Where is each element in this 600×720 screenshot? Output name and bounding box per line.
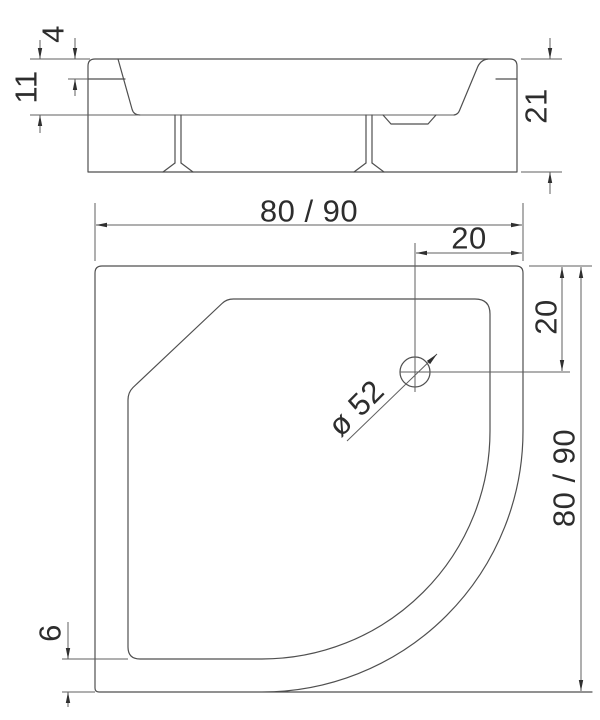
dimension-total-height: 21	[519, 38, 563, 194]
side-leg-left	[163, 115, 193, 172]
plan-view	[95, 243, 592, 692]
side-section-view	[30, 59, 517, 172]
dim-label-overall-depth: 80 / 90	[547, 429, 582, 527]
side-drain-recess	[383, 115, 436, 124]
side-right-slope	[454, 59, 488, 115]
technical-drawing-page: 4 11 21 80 / 90	[0, 0, 600, 720]
dim-label-overall-width: 80 / 90	[260, 194, 358, 229]
arrow-up-icon	[73, 79, 77, 90]
arrow-down-icon	[38, 48, 42, 59]
arrow-left-icon	[416, 251, 427, 255]
dim-label-rim-offset: 6	[33, 624, 68, 642]
dim-label-drain-offset-x: 20	[451, 221, 486, 256]
arrow-up-icon	[560, 267, 564, 278]
arrow-down-icon	[560, 360, 564, 371]
arrow-down-icon	[548, 48, 552, 59]
dim-label-rim-step: 4	[36, 25, 71, 43]
plan-outer-outline	[95, 266, 592, 692]
dim-label-total-height: 21	[519, 88, 554, 123]
dimension-drain-offset-x: 20	[416, 221, 522, 256]
arrow-up-icon	[66, 692, 70, 703]
dimension-drain-offset-y: 20	[529, 266, 593, 371]
arrow-up-icon	[548, 172, 552, 183]
dimension-rim-offset: 6	[33, 622, 129, 707]
dim-label-drain-offset-y: 20	[529, 299, 564, 334]
dim-label-drain-diameter: ø 52	[321, 373, 391, 443]
arrow-down-icon	[73, 48, 77, 59]
arrow-up-icon	[579, 267, 583, 278]
plan-inner-basin-edge	[128, 299, 490, 659]
arrow-left-icon	[96, 223, 107, 227]
arrow-down-icon	[66, 648, 70, 659]
arrow-right-icon	[511, 251, 522, 255]
dimension-drain-diameter: ø 52	[321, 354, 437, 443]
dim-label-rim-height: 11	[9, 70, 44, 103]
side-left-slope	[118, 59, 140, 115]
side-leg-right	[354, 115, 384, 172]
arrow-down-icon	[579, 680, 583, 691]
arrow-right-icon	[511, 223, 522, 227]
arrow-up-icon	[38, 115, 42, 126]
shower-tray-drawing-canvas: 4 11 21 80 / 90	[0, 0, 600, 720]
dimension-rim-height: 11	[9, 40, 44, 133]
